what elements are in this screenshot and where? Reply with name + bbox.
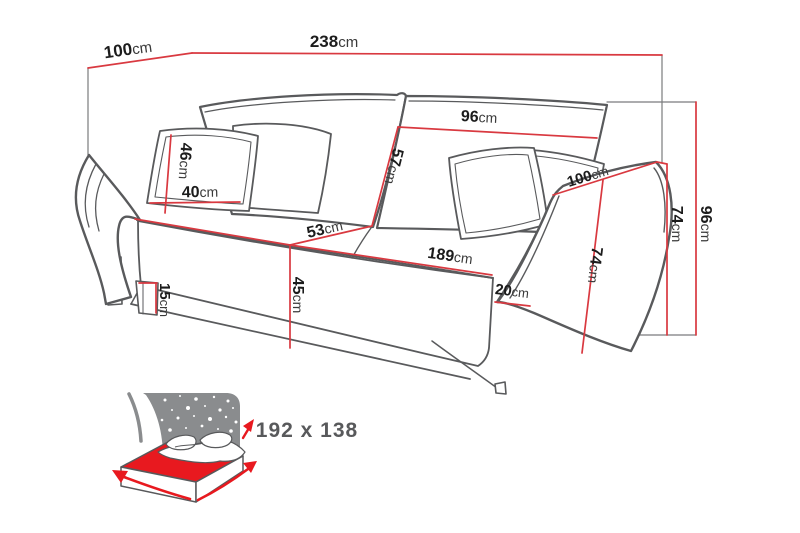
pillow-left-front xyxy=(147,129,258,211)
sofa-foot-right xyxy=(495,382,506,394)
dim-line-depth-top xyxy=(88,53,192,68)
bed-icon-swoosh-sliver xyxy=(129,394,141,441)
sofa-dimension-diagram: 100cm 238cm 96cm 57cm 46cm 40cm 53cm 45c… xyxy=(0,0,800,533)
sofa-leg-left-front xyxy=(136,281,158,315)
left-arm xyxy=(76,155,140,304)
bed-arrow-unfold-head xyxy=(243,419,254,432)
dim-line-width-total xyxy=(192,53,662,55)
bed-icon xyxy=(112,393,257,502)
seat-cushion-gap xyxy=(352,228,371,258)
dim-line-seat-depth xyxy=(290,226,372,245)
bed-size-label: 192 x 138 xyxy=(256,419,358,443)
dim-line-pillow-width xyxy=(150,202,240,203)
diagram-canvas xyxy=(0,0,800,533)
